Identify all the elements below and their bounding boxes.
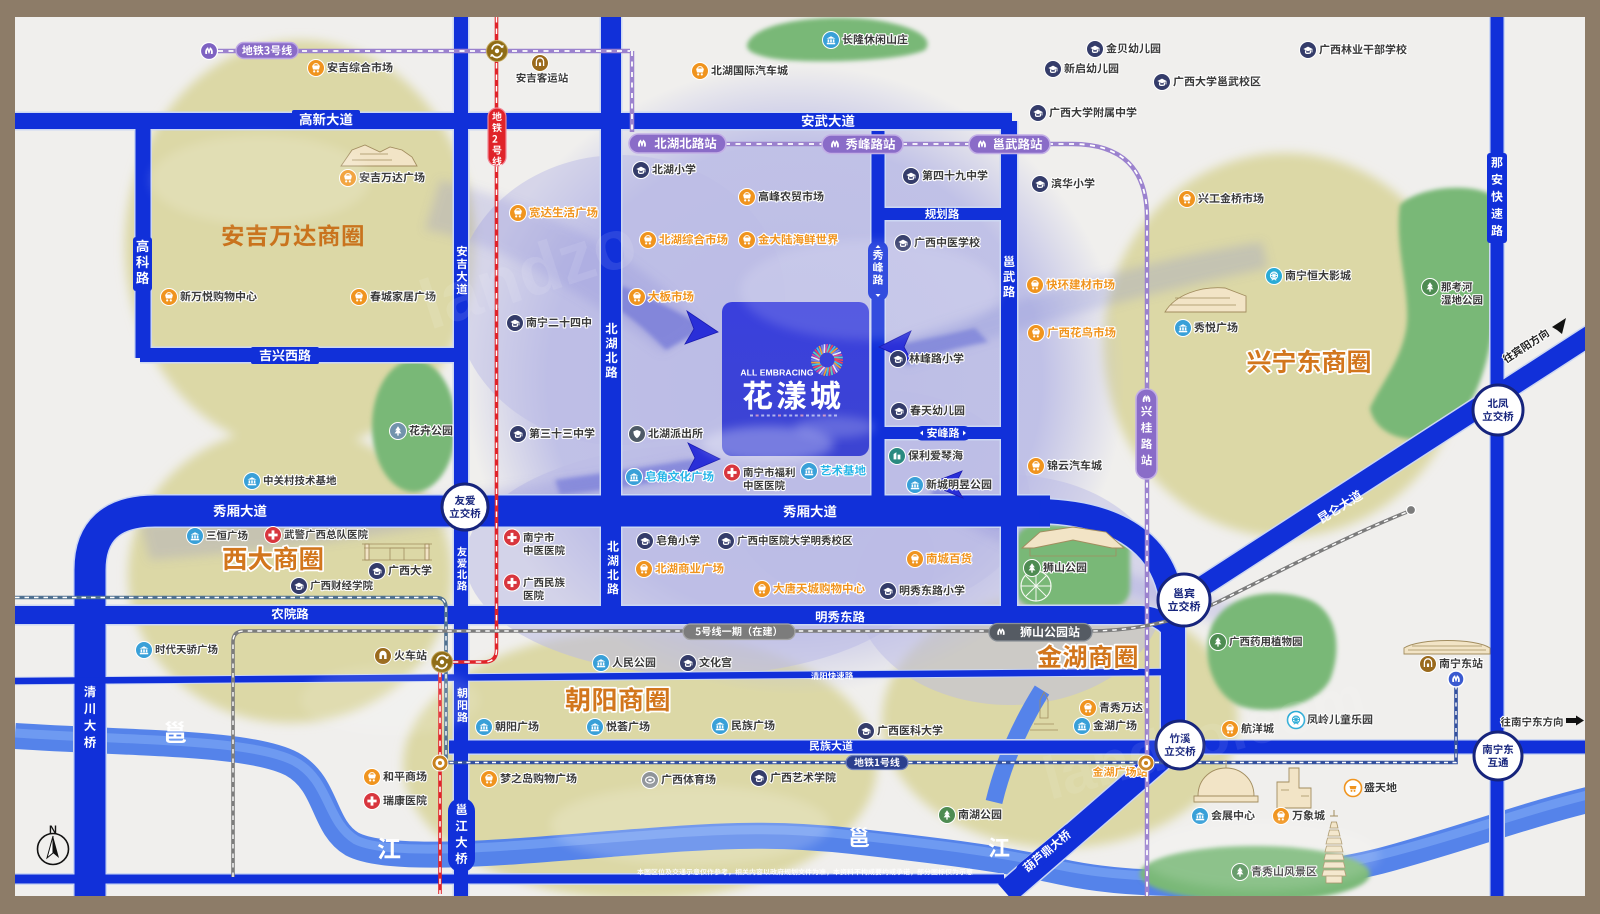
svg-text:N: N [49,824,57,836]
svg-text:ALL EMBRACING: ALL EMBRACING [740,368,813,378]
